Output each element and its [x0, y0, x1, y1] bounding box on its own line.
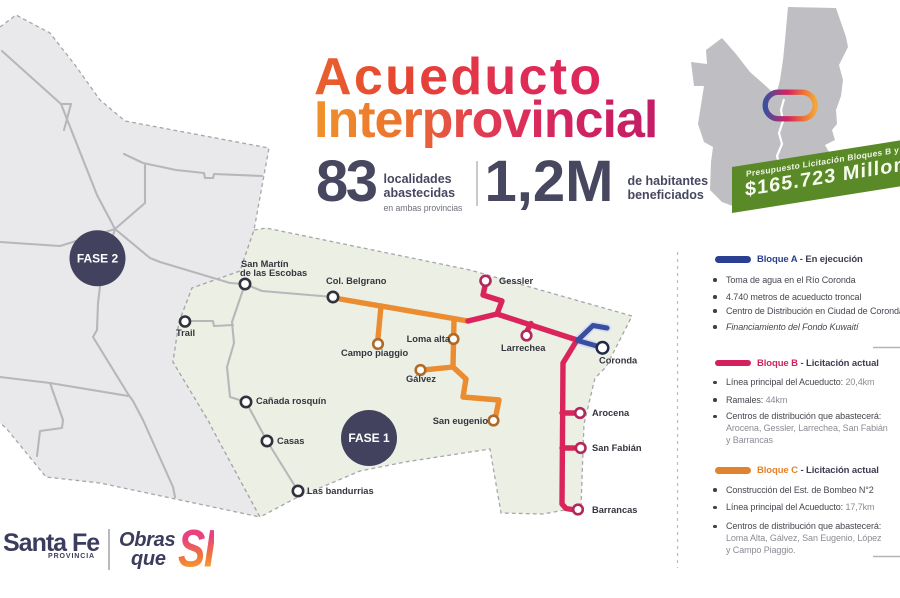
svg-text:Gessler: Gessler — [499, 276, 533, 286]
svg-text:de las Escobas: de las Escobas — [240, 268, 307, 278]
svg-text:San Fabián: San Fabián — [592, 443, 642, 453]
svg-text:Loma alta: Loma alta — [407, 334, 451, 344]
svg-text:Arocena: Arocena — [592, 408, 630, 418]
svg-text:Casas: Casas — [277, 436, 304, 446]
svg-text:Col. Belgrano: Col. Belgrano — [326, 276, 387, 286]
svg-text:Cañada rosquín: Cañada rosquín — [256, 396, 327, 406]
svg-text:Campo piaggio: Campo piaggio — [341, 348, 408, 358]
svg-text:San eugenio: San eugenio — [433, 416, 489, 426]
svg-text:Coronda: Coronda — [599, 356, 638, 366]
svg-text:Trail: Trail — [176, 328, 195, 338]
svg-text:FASE 2: FASE 2 — [77, 252, 119, 266]
svg-text:Barrancas: Barrancas — [592, 505, 637, 515]
svg-text:Las bandurrias: Las bandurrias — [307, 486, 374, 496]
svg-text:FASE 1: FASE 1 — [348, 431, 390, 445]
svg-text:Gálvez: Gálvez — [406, 374, 436, 384]
svg-text:Larrechea: Larrechea — [501, 343, 546, 353]
